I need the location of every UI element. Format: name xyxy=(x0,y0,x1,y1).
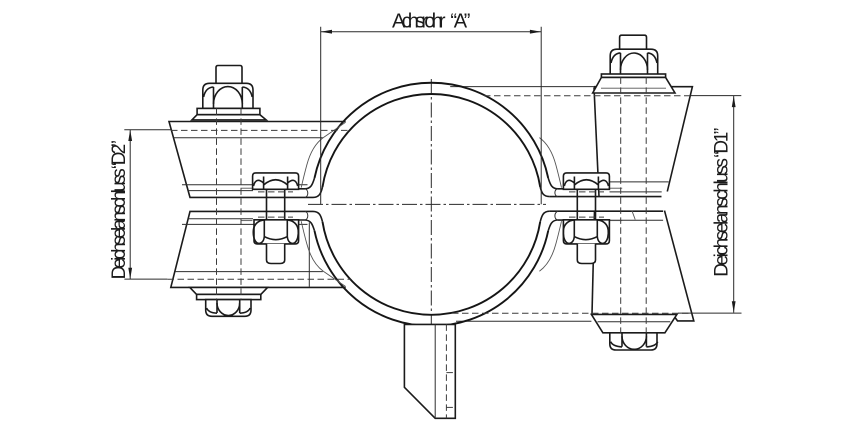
svg-text:“A”: “A” xyxy=(450,10,470,32)
svg-text:Deichselanschluss “D2”: Deichselanschluss “D2” xyxy=(109,140,130,279)
svg-text:Deichselanschluss “D1”: Deichselanschluss “D1” xyxy=(712,128,733,277)
svg-text:Achsrohr: Achsrohr xyxy=(392,10,446,32)
